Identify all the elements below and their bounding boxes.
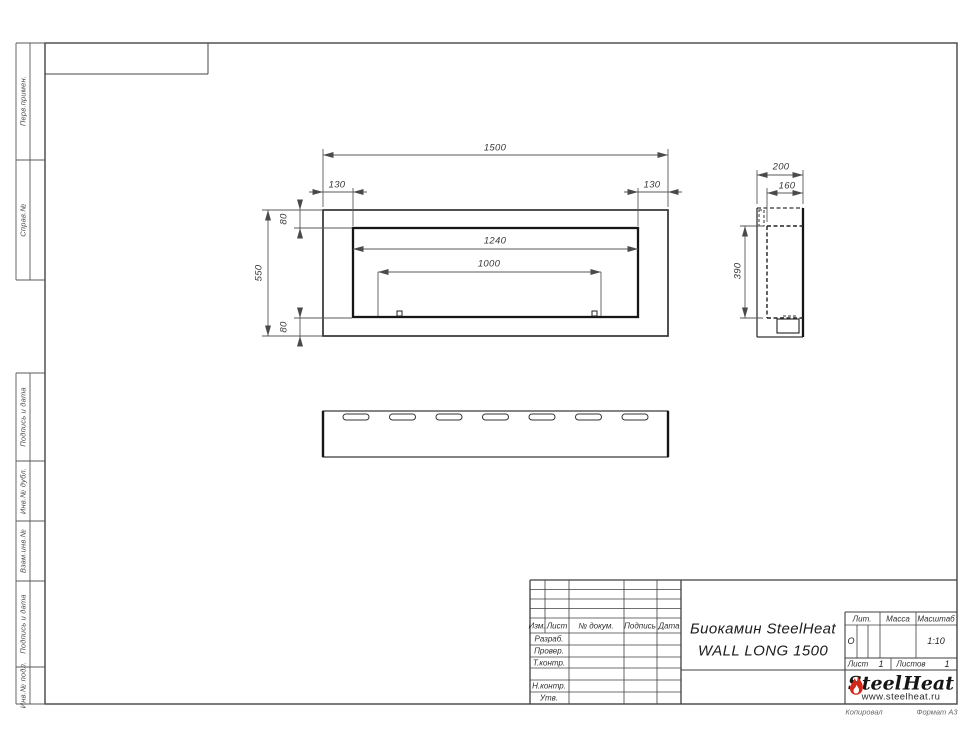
tb-mass-label: Масса [886,614,910,623]
burner-tab [592,311,597,316]
burner-tab [397,311,402,316]
tb-col-list: Лист [547,622,568,631]
dim-left-frame: 130 [329,180,346,191]
margin-label-perv-primen: Перв.примен. [19,76,28,126]
tb-row-razrab: Разраб. [535,635,564,644]
margin-label-inv-dubl: Инв.№ дубл. [19,468,28,514]
margin-label-podpis-data-1: Подпись и дата [19,387,28,447]
tb-lit-label: Лит. [853,614,872,623]
tb-col-data: Дата [658,622,679,631]
vent-slot [576,414,602,420]
logo-url: www.steelheat.ru [862,692,941,703]
footer-copied: Копировал [845,708,882,717]
tb-col-izm: Изм. [528,622,545,631]
dim-bottom-frame: 80 [279,321,290,332]
margin-label-sprav-no: Справ.№ [19,203,28,236]
vent-slot [622,414,648,420]
dim-right-frame: 130 [644,180,661,191]
tb-lit-value: О [847,636,854,646]
dim-inner-depth: 160 [779,181,796,192]
vent-slot [483,414,509,420]
margin-label-vzam-inv: Взам.инв.№ [19,529,28,573]
tb-sheets-value: 1 [944,659,949,669]
vent-slot [343,414,369,420]
dim-burner-width: 1000 [478,259,500,270]
vent-slots [343,414,648,420]
vent-slot [390,414,416,420]
drawing-sheet: Перв.примен. Справ.№ Подпись и дата Инв.… [0,0,970,749]
tb-col-podpis: Подпись [624,622,656,631]
tb-row-prover: Провер. [534,647,564,656]
document-title-line2: WALL LONG 1500 [698,643,828,660]
side-mount-strip [759,210,764,226]
dim-inner-height: 390 [733,263,744,280]
tb-col-ndokum: № докум. [578,622,613,631]
side-hidden-box [767,226,803,318]
document-title-line1: Биокамин SteelHeat [690,621,836,638]
tb-row-nkontr: Н.контр. [532,682,566,691]
tb-scale-label: Масштаб [917,614,954,623]
vent-slot [436,414,462,420]
tb-row-tkontr: Т.контр. [533,658,565,667]
tb-row-utv: Утв. [540,694,558,703]
side-burner-box [777,319,799,333]
vent-slot [529,414,555,420]
margin-label-inv-podl: Инв.№ подл. [19,662,28,709]
side-view-dimensions [740,170,803,318]
dim-top-frame: 80 [279,213,290,224]
tb-sheet-label: Лист [848,660,869,669]
tb-scale-value: 1:10 [927,636,945,646]
dim-total-depth: 200 [773,162,790,173]
tb-sheet-value: 1 [878,659,883,669]
dim-total-width: 1500 [484,143,506,154]
tb-sheets-label: Листов [896,660,925,669]
side-view [757,208,803,337]
front-view [323,210,668,336]
bottom-view [323,411,668,457]
footer-format: Формат А3 [916,708,957,717]
dim-total-height: 550 [254,265,265,282]
dim-opening-width: 1240 [484,236,506,247]
margin-label-podpis-data-2: Подпись и дата [19,594,28,654]
